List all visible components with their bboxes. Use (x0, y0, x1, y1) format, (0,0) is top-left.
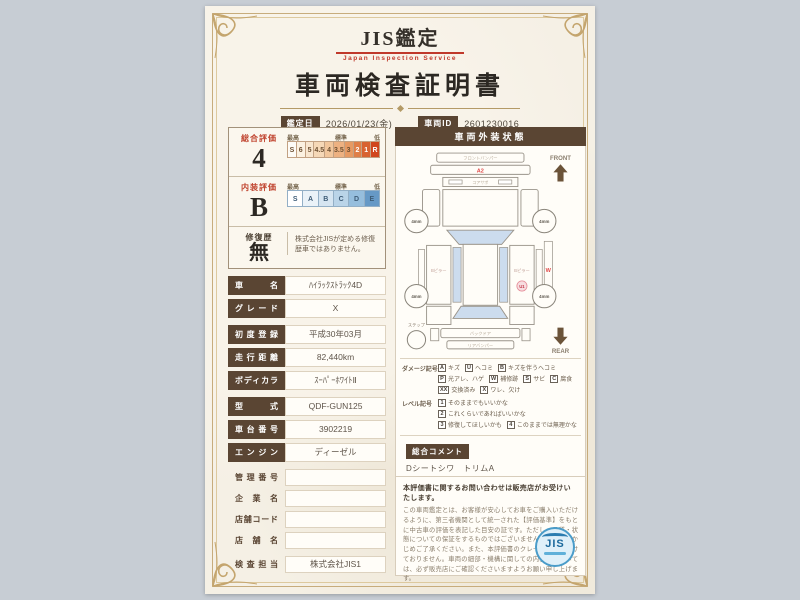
tread-depth-front-left: 4mm (411, 219, 421, 224)
certificate-paper: JIS鑑定 Japan Inspection Service 車両検査証明書 鑑… (205, 6, 595, 594)
front-label: FRONT (550, 155, 571, 162)
table-row: 管理番号 (228, 469, 386, 486)
right-column: 車両外装状態 FRONT REAR フロントバンパー A2 コアサポ (395, 127, 586, 507)
legend-item: W補修跡 (489, 374, 518, 383)
row-label: 車名 (228, 276, 285, 295)
row-label: グレード (228, 299, 285, 318)
brand-title: JIS鑑定 (205, 22, 595, 51)
tread-depth-front-right: 4mm (539, 219, 549, 224)
row-value (285, 490, 386, 507)
legend-item: Xワレ、欠け (480, 385, 520, 394)
overall-rating-row: 総合評価 4 最高 標準 低 S 6 5 4.5 4 3.5 (229, 128, 385, 176)
table-row: 車台番号 3902219 (228, 420, 386, 439)
row-value (285, 469, 386, 486)
table-row: 型式 QDF-GUN125 (228, 397, 386, 416)
row-label: 管理番号 (228, 469, 285, 486)
row-label: 検査担当 (228, 556, 285, 573)
overall-scale: S 6 5 4.5 4 3.5 3 2 1 R (287, 141, 380, 158)
damage-mark-a2: A2 (477, 168, 484, 174)
brand-underline (336, 52, 464, 54)
legend-item: XX交換済み (438, 385, 475, 394)
scale-cell: R (370, 141, 380, 158)
row-value: ディーゼル (285, 443, 386, 462)
level-legend-title: レベル記号 (402, 398, 438, 429)
legend-item: Sサビ (523, 374, 545, 383)
comment-line: Dシートシワ トリムA (406, 463, 575, 475)
row-label: エンジン (228, 443, 285, 462)
disclaimer-panel: 本評価書に関するお問い合わせは販売店がお受けいたします。 この車両鑑定とは、お客… (395, 476, 586, 576)
tread-depth-rear-right: 4mm (539, 294, 549, 299)
row-label: 車台番号 (228, 420, 285, 439)
exterior-diagram-panel: FRONT REAR フロントバンパー A2 コアサポ (395, 146, 586, 507)
scale-label-high: 最高 (287, 133, 299, 142)
interior-rating-value: B (234, 193, 284, 221)
legend-item: P光アレ、ハゲ (438, 374, 484, 383)
row-label: 企業名 (228, 490, 285, 507)
scale-label-mid: 標準 (335, 133, 347, 142)
table-row: 店舗名 (228, 532, 386, 549)
row-label: 店舗名 (228, 532, 285, 549)
scale-label-mid: 標準 (335, 182, 347, 191)
title-separator (280, 106, 520, 111)
rating-box: 総合評価 4 最高 標準 低 S 6 5 4.5 4 3.5 (228, 127, 386, 269)
table-row: エンジン ディーゼル (228, 443, 386, 462)
row-label: ボディカラー (228, 371, 285, 390)
damage-legend-title: ダメージ記号 (402, 363, 438, 394)
table-row: 走行距離 82,440km (228, 348, 386, 367)
scale-cell: A (302, 190, 318, 207)
rear-arrow-icon (553, 328, 567, 345)
scale-cell: C (333, 190, 349, 207)
repair-history-note: 株式会社JISが定める修復歴車ではありません。 (287, 232, 380, 255)
interior-scale-header: 最高 標準 低 (287, 182, 380, 190)
row-label: 型式 (228, 397, 285, 416)
exterior-panel-title: 車両外装状態 (395, 127, 586, 146)
legend-item: Aキズ (438, 363, 460, 372)
scale-label-low: 低 (374, 182, 380, 191)
certificate-title: 車両検査証明書 (205, 66, 595, 102)
legend-item: Uヘコミ (465, 363, 493, 372)
row-value: X (285, 299, 386, 318)
table-row: 店舗コード (228, 511, 386, 528)
legend-item: 4このままでは無理かな (507, 420, 577, 429)
core-support-label: コアサポ (472, 179, 488, 185)
legend-item: Bキズを伴うヘコミ (498, 363, 556, 372)
scale-cell: D (348, 190, 364, 207)
jis-logo: JIS (535, 527, 575, 567)
overall-scale-header: 最高 標準 低 (287, 133, 380, 141)
vehicle-details-table: 車名 ﾊｲﾗｯｸｽﾄﾗｯｸ4D グレード X 初度登録 平成30年03月 走行距… (228, 276, 386, 573)
disclaimer-heading: 本評価書に関するお問い合わせは販売店がお受けいたします。 (403, 483, 578, 503)
row-value (285, 532, 386, 549)
table-row: 初度登録 平成30年03月 (228, 325, 386, 344)
row-value: 3902219 (285, 420, 386, 439)
row-value: QDF-GUN125 (285, 397, 386, 416)
repair-history-value: 無 (234, 243, 284, 264)
row-value: 株式会社JIS1 (285, 556, 386, 573)
legend-item: 2これくらいであればいいかな (438, 409, 526, 418)
rear-label: REAR (552, 348, 570, 355)
page: { "header": { "brand": "JIS鑑定", "brand_s… (0, 0, 800, 600)
table-row: 企業名 (228, 490, 386, 507)
car-exterior-diagram: FRONT REAR フロントバンパー A2 コアサポ (400, 148, 581, 358)
legend-item: 1そのままでもいいかな (438, 398, 508, 407)
jis-logo-text: JIS (537, 539, 573, 550)
row-value (285, 511, 386, 528)
damage-mark-w: W (546, 268, 552, 274)
row-label: 走行距離 (228, 348, 285, 367)
row-value: ｽｰﾊﾟｰﾎﾜｲﾄⅡ (285, 371, 386, 390)
brand-subtitle: Japan Inspection Service (205, 55, 595, 62)
legend-item: 3修復してほしいかも (438, 420, 502, 429)
overall-comment-title: 総合コメント (406, 444, 469, 459)
front-bumper-label: フロントバンパー (463, 156, 497, 161)
jis-logo-wave-icon (544, 552, 566, 555)
table-row: ボディカラー ｽｰﾊﾟｰﾎﾜｲﾄⅡ (228, 371, 386, 390)
row-value: ﾊｲﾗｯｸｽﾄﾗｯｸ4D (285, 276, 386, 295)
scale-cell: B (318, 190, 334, 207)
step-label: ステップ (408, 323, 426, 329)
interior-rating-row: 内装評価 B 最高 標準 低 S A B C D E (229, 176, 385, 225)
table-row: グレード X (228, 299, 386, 318)
scale-cell: S (287, 190, 303, 207)
legend-item: C腐食 (550, 374, 572, 383)
row-value: 平成30年03月 (285, 325, 386, 344)
table-row: 車名 ﾊｲﾗｯｸｽﾄﾗｯｸ4D (228, 276, 386, 295)
table-row: 検査担当 株式会社JIS1 (228, 556, 386, 573)
scale-label-high: 最高 (287, 182, 299, 191)
certificate-header: JIS鑑定 Japan Inspection Service 車両検査証明書 鑑… (205, 22, 595, 131)
scale-label-low: 低 (374, 133, 380, 142)
row-label: 初度登録 (228, 325, 285, 344)
damage-legend: ダメージ記号 Aキズ Uヘコミ Bキズを伴うヘコミ P光アレ、ハゲ W補修跡 S… (400, 358, 581, 435)
row-label: 店舗コード (228, 511, 285, 528)
tread-depth-rear-left: 4mm (411, 294, 421, 299)
repair-history-row: 修復歴 無 株式会社JISが定める修復歴車ではありません。 (229, 226, 385, 268)
left-column: 総合評価 4 最高 標準 低 S 6 5 4.5 4 3.5 (228, 127, 386, 577)
damage-mark-u1: U1 (519, 284, 525, 289)
interior-scale: S A B C D E (287, 190, 380, 207)
row-value: 82,440km (285, 348, 386, 367)
overall-rating-value: 4 (234, 144, 284, 172)
scale-cell: E (364, 190, 380, 207)
front-arrow-icon (553, 164, 567, 181)
